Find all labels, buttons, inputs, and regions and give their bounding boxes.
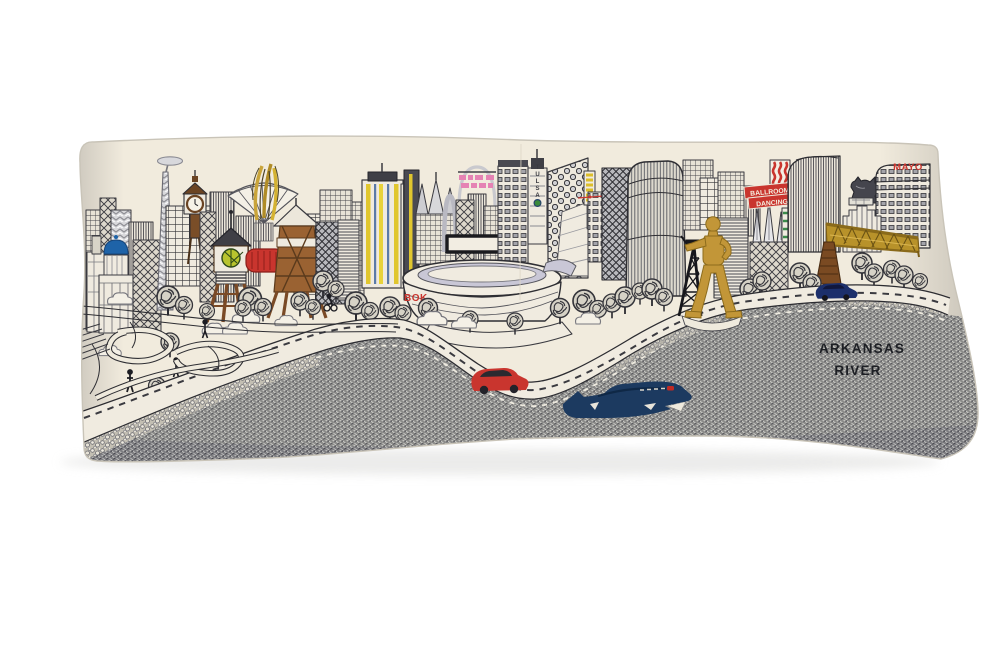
svg-text:S: S (535, 186, 539, 192)
svg-text:L: L (536, 179, 540, 185)
svg-text:T: T (536, 165, 540, 171)
svg-text:A: A (535, 193, 540, 199)
svg-text:U: U (535, 172, 539, 178)
svg-text:MAYO: MAYO (893, 162, 923, 173)
svg-text:RIVER: RIVER (834, 363, 881, 378)
svg-text:ARKANSAS: ARKANSAS (819, 341, 905, 356)
